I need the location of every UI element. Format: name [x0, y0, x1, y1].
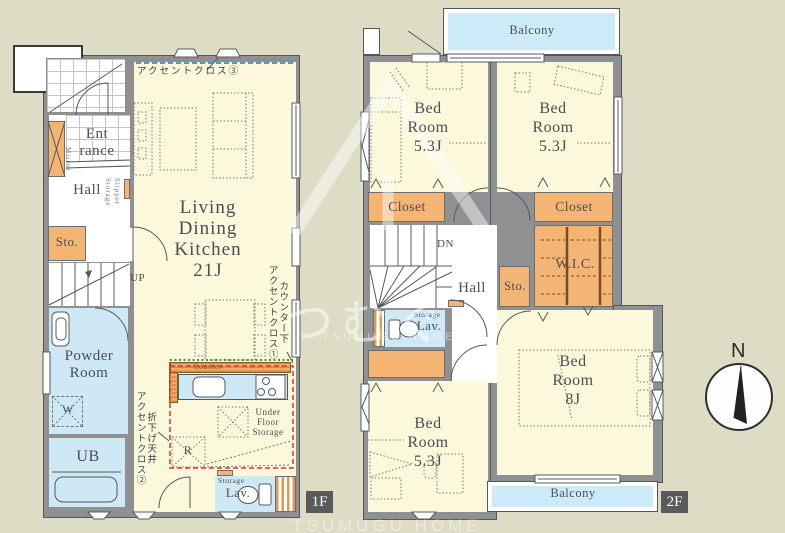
closet-ne-label: Closet [555, 199, 593, 214]
wic-label: W.I.C. [555, 257, 594, 273]
under-floor-storage-label: Under Floor Storage [253, 407, 284, 437]
counter-label: Counter [193, 363, 222, 372]
ldk-label: Living Dining Kitchen 21J [174, 197, 241, 281]
washer-label: W [62, 403, 74, 416]
storage-2f-label: Sto. [504, 279, 526, 293]
fridge-label: R [184, 444, 193, 457]
compass [706, 364, 772, 430]
plan-linework [0, 0, 785, 533]
bedroom-ne-label: Bed Room 5.3J [532, 99, 573, 156]
unit-bath-label: UB [76, 448, 99, 466]
accent-cloth-3-label: アクセントクロス③ [137, 67, 240, 78]
hall-2f-label: Hall [458, 280, 486, 297]
accent-cloth-1-label: カウンター下 アクセントクロス① [266, 262, 287, 362]
storage-1f-label: Sto. [56, 235, 79, 250]
watermark-en: TSUMUGU HOME [322, 331, 456, 343]
watermark-en-bottom: TSUMUGU HOME [292, 516, 482, 533]
balcony-bottom-label: Balcony [550, 486, 595, 500]
floor2-tag: 2F [661, 491, 688, 513]
balcony-top-label: Balcony [509, 23, 554, 37]
powder-room-label: Powder Room [65, 348, 114, 382]
floor-plan-canvas: アクセントクロス③ Ent rance Mirror Hall Slipper … [0, 0, 785, 533]
bedroom-sw-label: Bed Room 5.3J [407, 414, 448, 471]
floor1-tag: 1F [306, 491, 333, 513]
stairs-up-label: UP [130, 272, 145, 284]
slipper-storage-label: Slipper Storage [103, 170, 121, 214]
entrance-label: Ent rance [80, 126, 115, 160]
closet-nw-label: Closet [388, 199, 426, 214]
bedroom-nw-label: Bed Room 5.3J [407, 99, 448, 156]
compass-north-label: N [731, 340, 746, 362]
lav-1f-label: Lav. [226, 486, 251, 501]
bedroom-se-label: Bed Room 8J [552, 352, 593, 409]
accent-cloth-2-label: 折下げ天井 アクセントクロス② [134, 388, 155, 488]
mirror-label: Mirror [63, 147, 71, 172]
stairs-dn-label: DN [437, 238, 454, 250]
hall-1f-label: Hall [73, 182, 101, 199]
